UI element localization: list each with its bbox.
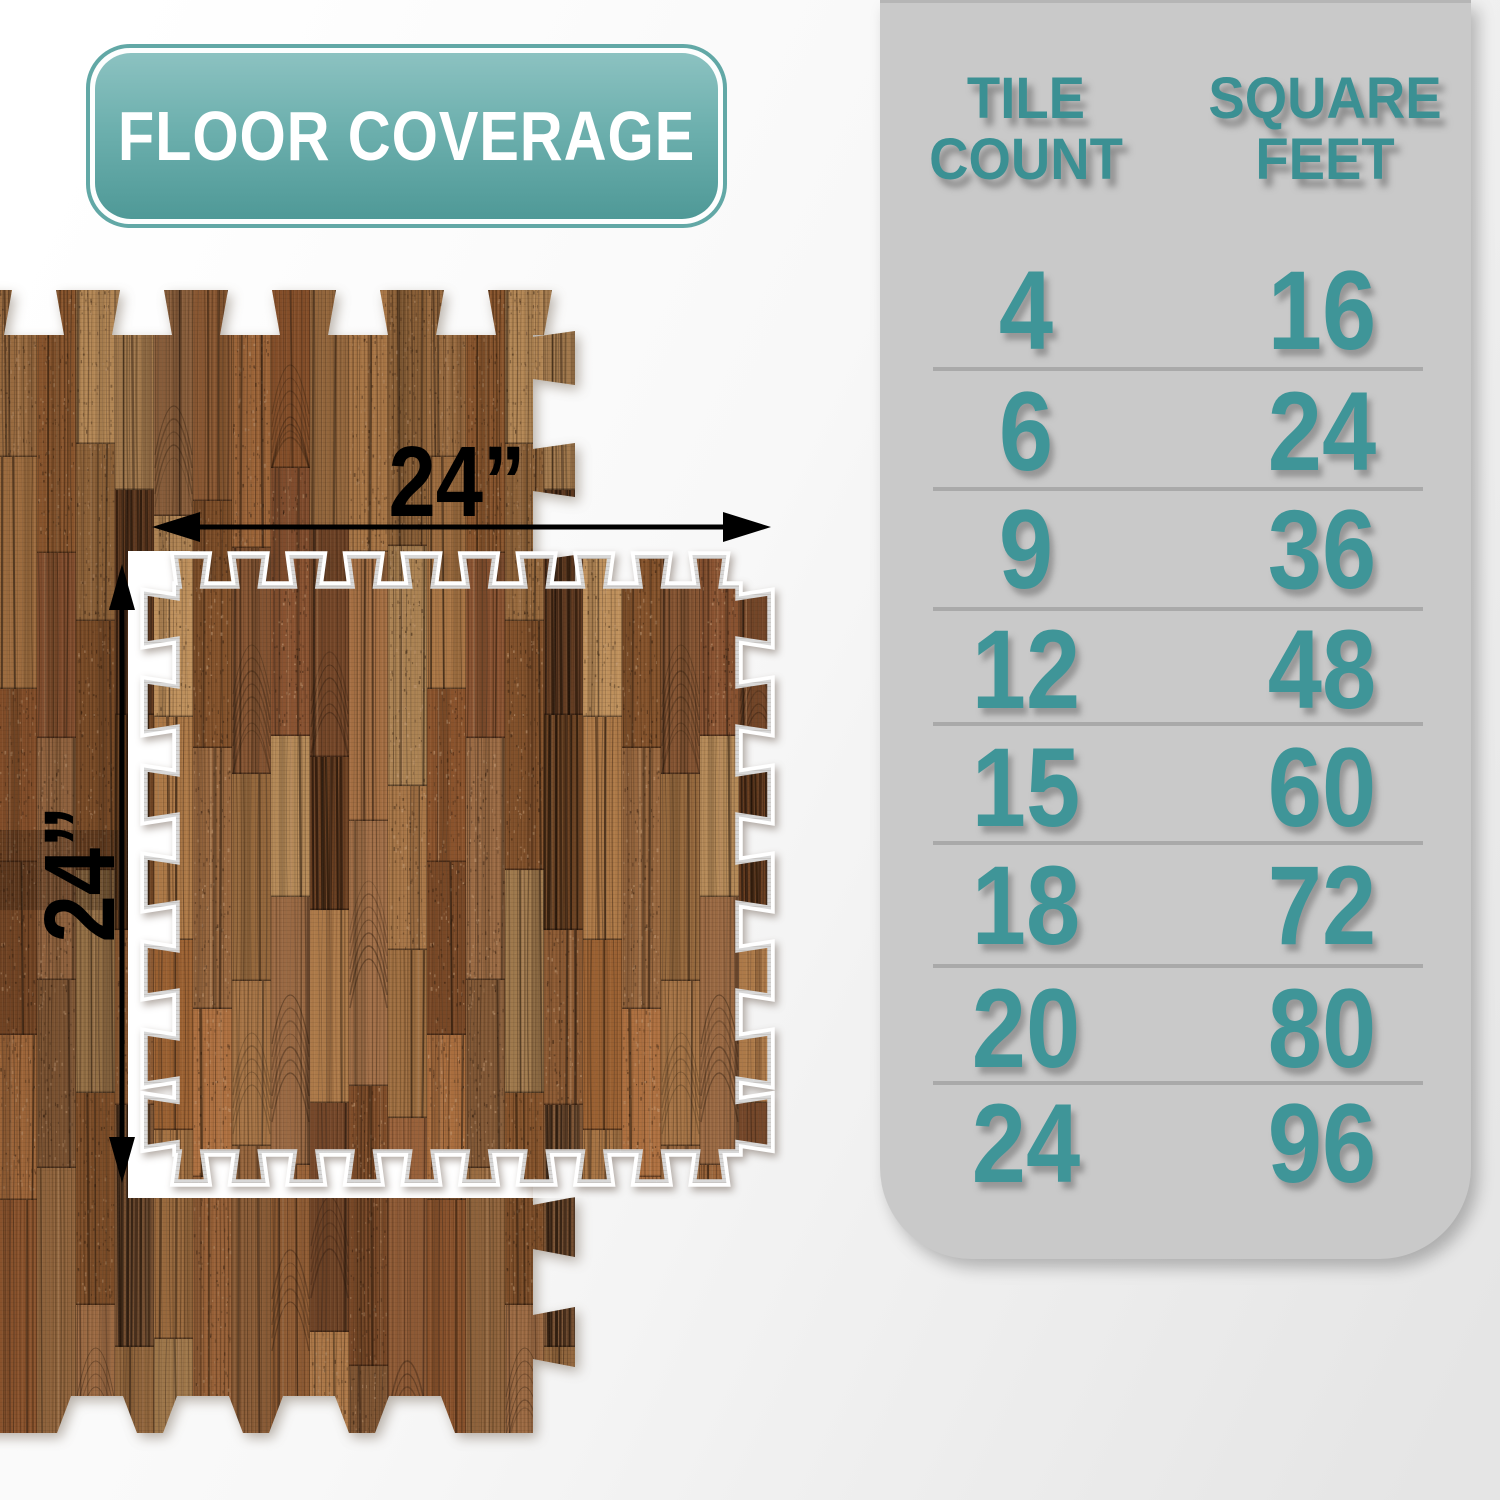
svg-text:24”: 24” bbox=[23, 805, 135, 942]
svg-text:24”: 24” bbox=[388, 425, 525, 537]
